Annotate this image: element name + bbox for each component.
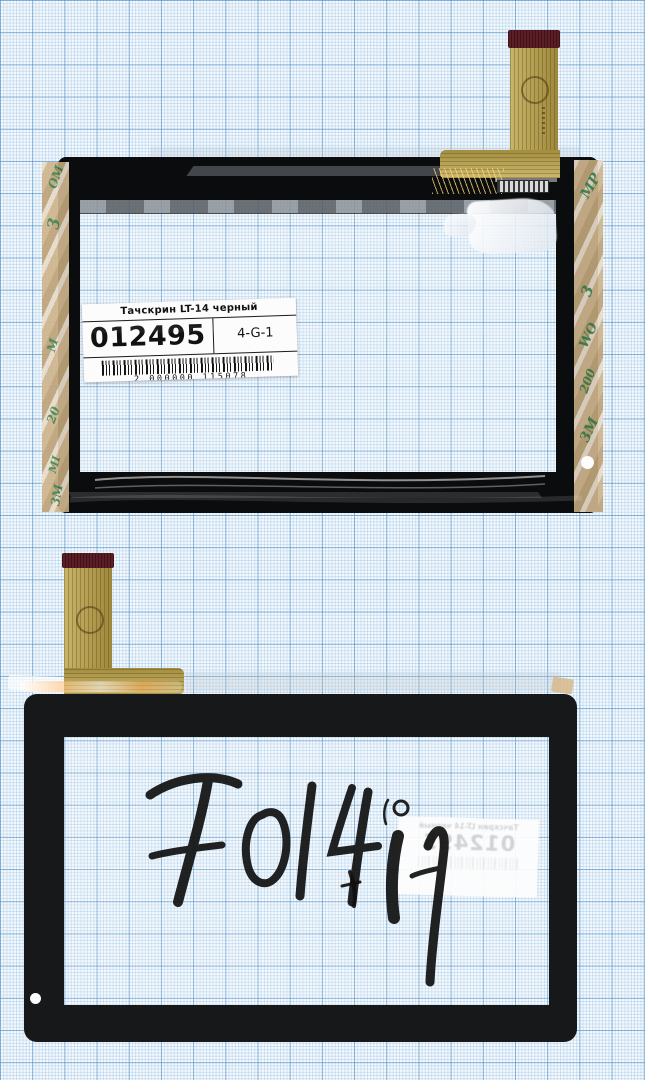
cable-fan-traces: [432, 168, 504, 194]
mirrored-barcode: [418, 856, 518, 871]
price-label-cell: 4-G-1: [213, 316, 297, 354]
mounting-hole-back: [30, 993, 41, 1004]
tape-text: MI: [46, 454, 63, 474]
price-label-back-mirrored: Тачскрин LT-14 черный 012495: [397, 816, 539, 898]
flex-cable-tip-bottom: [62, 553, 114, 568]
price-label: Тачскрин LT-14 черный 012495 4-G-1 2 000…: [82, 298, 298, 383]
adhesive-tape-left: OM 3 M 20 MI 3M: [42, 162, 69, 512]
price-label-code: 012495: [82, 318, 214, 357]
mirrored-label-code: 012495: [398, 829, 539, 857]
tape-text: 200: [577, 367, 599, 395]
tape-text: 3: [43, 216, 64, 230]
tape-tab-tan: [551, 677, 574, 695]
flex-cable-tip-top: [508, 30, 560, 48]
tape-text: M: [44, 337, 61, 353]
tape-text: 3: [577, 283, 597, 299]
tape-text: OM: [45, 163, 66, 190]
cable-connector-teeth: [497, 180, 549, 193]
film-edge-band-bottom: [185, 672, 560, 692]
flex-cable-bottom-horizontal: [64, 668, 184, 694]
foil-reflection-patch: [466, 196, 558, 256]
tape-text: 3M: [577, 415, 602, 445]
photo-canvas: Тачскрин LT-14 черный 012495 4-G-1 2 000…: [0, 0, 645, 1080]
tape-text: WO: [577, 321, 602, 351]
price-label-number-row: 012495 4-G-1: [82, 316, 297, 359]
mounting-hole-front: [581, 456, 594, 469]
tape-text: 20: [44, 405, 63, 425]
cable-print-marks: [542, 106, 545, 134]
mirrored-label-content: Тачскрин LT-14 черный 012495: [398, 820, 539, 871]
tape-text: 3M: [48, 483, 66, 507]
tape-text: MP: [578, 171, 603, 202]
